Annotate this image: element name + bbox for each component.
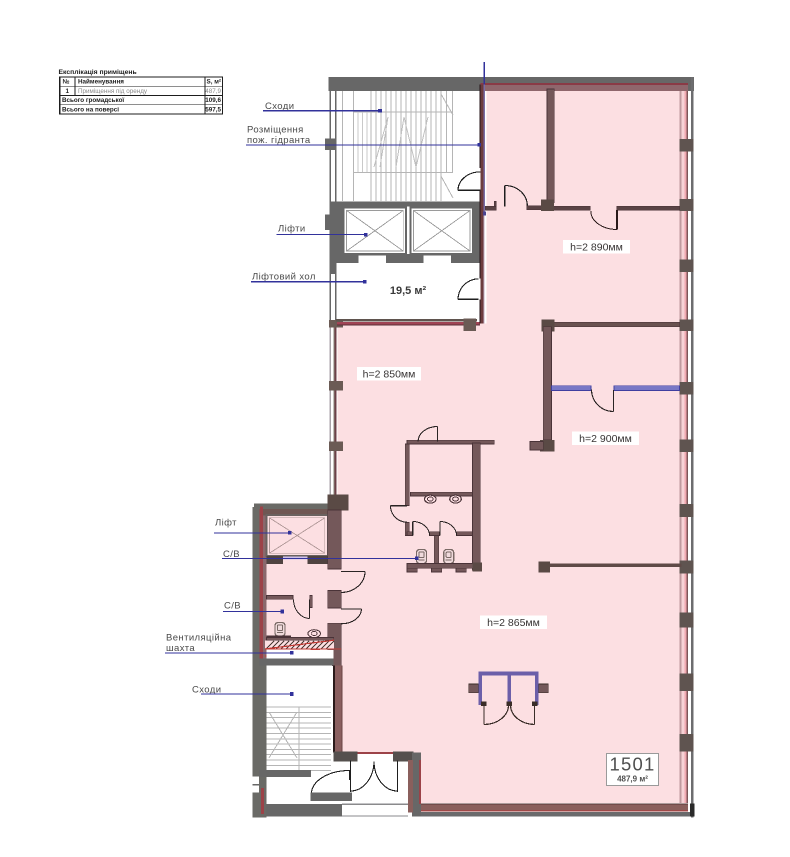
svg-text:597,5: 597,5 xyxy=(205,106,221,113)
svg-text:109,6: 109,6 xyxy=(205,97,221,104)
svg-text:487,9 м²: 487,9 м² xyxy=(617,775,648,784)
svg-text:Ліфтовий хол: Ліфтовий хол xyxy=(252,272,316,283)
svg-text:h=2 865мм: h=2 865мм xyxy=(487,617,540,629)
svg-text:Ліфт: Ліфт xyxy=(215,518,237,529)
svg-text:Ліфти: Ліфти xyxy=(278,224,306,235)
svg-text:1501: 1501 xyxy=(610,754,656,775)
svg-text:Вентиляційна: Вентиляційна xyxy=(166,633,232,644)
svg-text:Всього громадської: Всього громадської xyxy=(62,97,124,104)
svg-text:Найменування: Найменування xyxy=(78,78,124,86)
svg-text:№: № xyxy=(63,79,70,86)
svg-text:487,9: 487,9 xyxy=(205,88,221,95)
svg-text:19,5 м²: 19,5 м² xyxy=(390,285,427,297)
svg-text:Всього на поверсі: Всього на поверсі xyxy=(62,105,119,113)
svg-text:Експлікація приміщень: Експлікація приміщень xyxy=(59,68,137,76)
svg-text:h=2 850мм: h=2 850мм xyxy=(363,369,416,381)
svg-text:С/В: С/В xyxy=(224,601,241,612)
svg-text:S, м²: S, м² xyxy=(207,79,221,86)
svg-text:Розміщення: Розміщення xyxy=(247,125,304,136)
svg-text:Приміщення під оренду: Приміщення під оренду xyxy=(78,87,148,95)
svg-text:1: 1 xyxy=(66,88,70,95)
svg-text:h=2 900мм: h=2 900мм xyxy=(579,433,632,445)
svg-text:h=2 890мм: h=2 890мм xyxy=(570,242,623,254)
